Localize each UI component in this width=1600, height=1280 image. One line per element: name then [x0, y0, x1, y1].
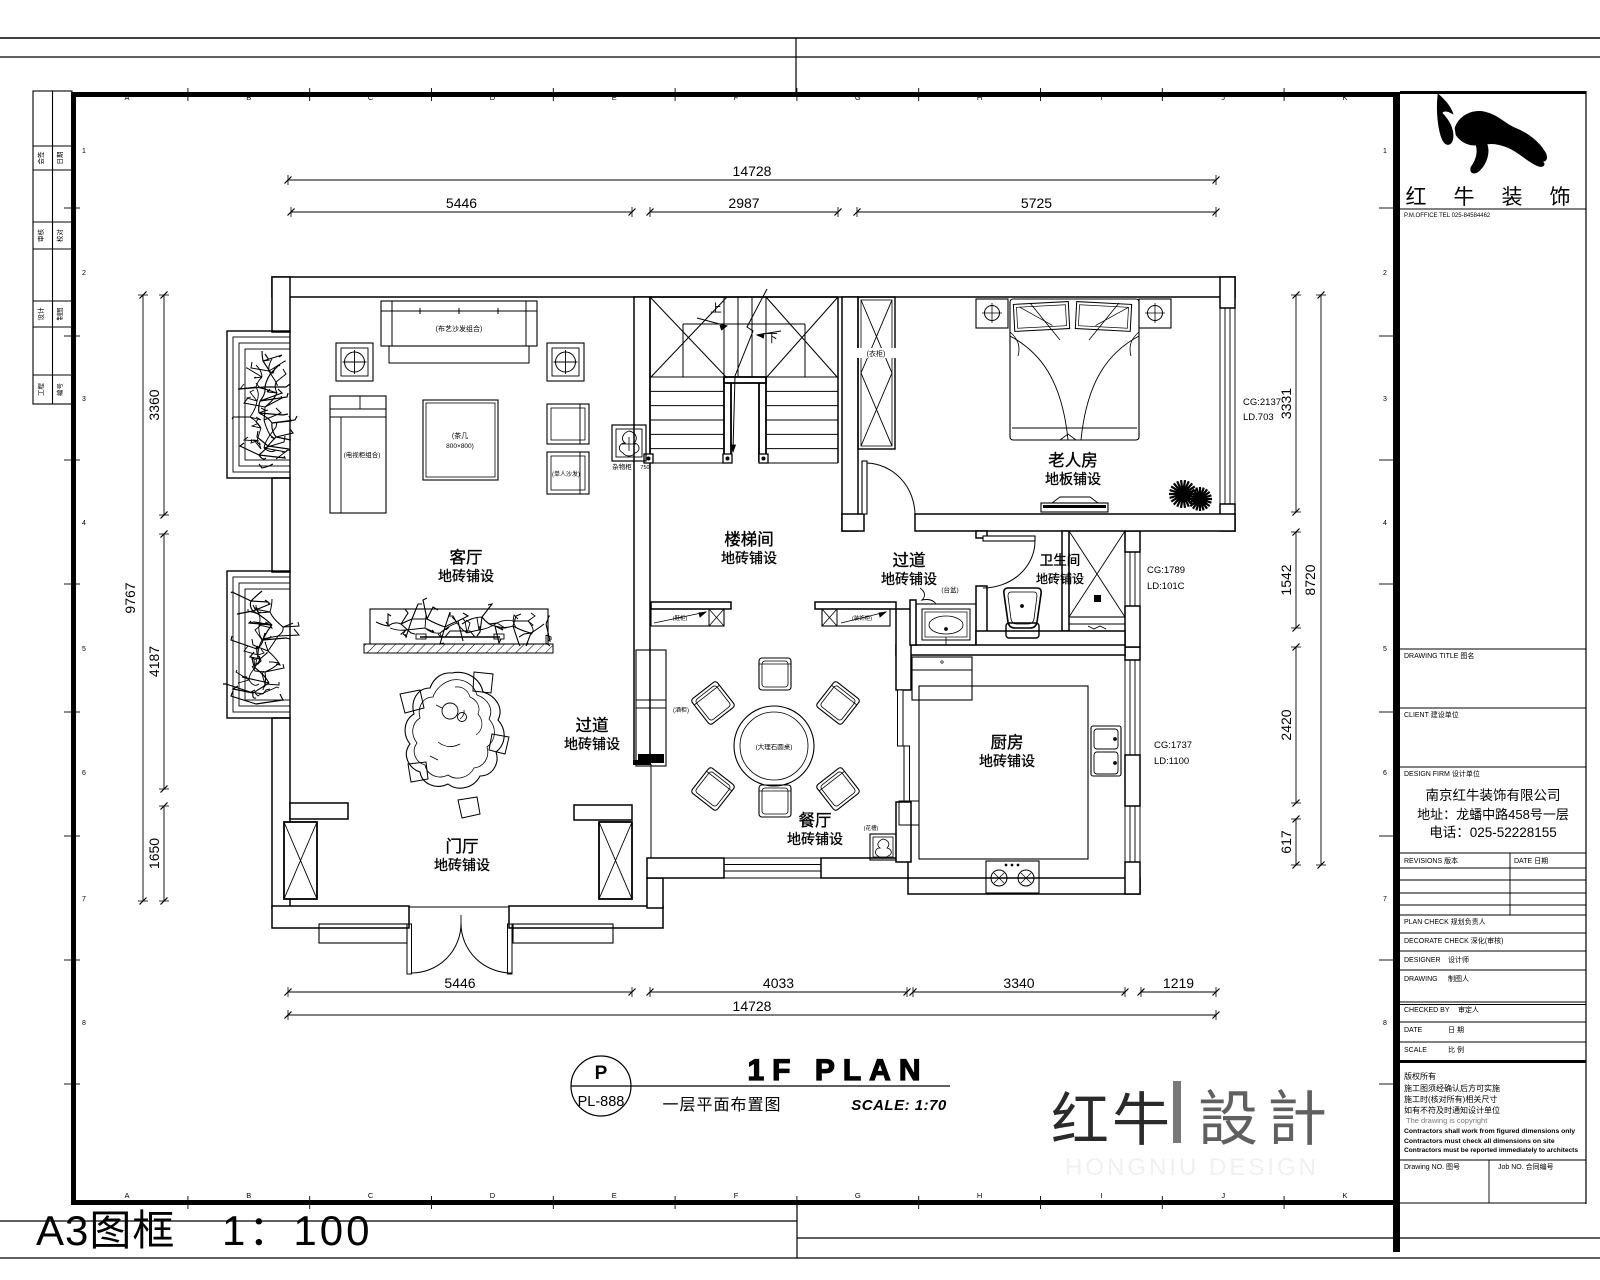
svg-text:1：100: 1：100: [222, 1207, 372, 1254]
svg-text:LD:101C: LD:101C: [1147, 581, 1185, 592]
svg-text:(单人沙发): (单人沙发): [552, 470, 580, 478]
svg-text:地砖铺设: 地砖铺设: [434, 857, 490, 873]
svg-text:800×800): 800×800): [446, 443, 474, 450]
svg-text:校对: 校对: [55, 229, 64, 243]
svg-text:地址：龙蟠中路458号一层: 地址：龙蟠中路458号一层: [1417, 807, 1569, 822]
svg-text:CHECKED BY: CHECKED BY: [1404, 1007, 1450, 1014]
svg-text:2420: 2420: [1278, 709, 1294, 740]
svg-text:制图人: 制图人: [1448, 974, 1469, 983]
svg-text:比 例: 比 例: [1448, 1045, 1464, 1054]
svg-text:杂物柜: 杂物柜: [612, 462, 632, 471]
svg-text:(布艺沙发组合): (布艺沙发组合): [436, 324, 483, 333]
svg-text:J: J: [1221, 93, 1225, 102]
svg-text:J: J: [1221, 1191, 1225, 1200]
svg-text:D: D: [490, 93, 496, 102]
svg-text:CG:2137: CG:2137: [1243, 397, 1281, 408]
svg-text:C: C: [368, 1191, 374, 1200]
svg-text:过道: 过道: [893, 551, 926, 570]
svg-text:G: G: [855, 93, 861, 102]
svg-text:617: 617: [1278, 830, 1294, 854]
svg-text:(电视柜组合): (电视柜组合): [344, 450, 381, 459]
svg-text:1542: 1542: [1278, 564, 1294, 595]
svg-text:E: E: [612, 93, 617, 102]
svg-text:3360: 3360: [146, 389, 162, 420]
svg-text:南京红牛装饰有限公司: 南京红牛装饰有限公司: [1426, 788, 1561, 803]
svg-text:装: 装: [1502, 186, 1523, 209]
svg-text:HONGNIU DESIGN: HONGNIU DESIGN: [1065, 1154, 1319, 1181]
svg-text:4: 4: [82, 520, 86, 527]
svg-text:PL-888: PL-888: [578, 1094, 625, 1110]
svg-text:CG:1737: CG:1737: [1154, 740, 1192, 751]
svg-text:8: 8: [1383, 1020, 1387, 1027]
svg-text:K: K: [1342, 93, 1347, 102]
svg-text:5725: 5725: [1021, 195, 1052, 211]
svg-text:地砖铺设: 地砖铺设: [721, 550, 777, 566]
svg-text:下: 下: [766, 333, 778, 345]
svg-text:(装饰柜): (装饰柜): [852, 614, 872, 622]
svg-text:编号: 编号: [55, 383, 64, 397]
svg-text:6: 6: [82, 770, 86, 777]
svg-text:门厅: 门厅: [446, 837, 479, 856]
svg-text:B: B: [246, 93, 251, 102]
svg-text:Job NO. 合同编号: Job NO. 合同编号: [1498, 1162, 1554, 1171]
svg-text:5: 5: [82, 646, 86, 653]
svg-text:H: H: [977, 1191, 982, 1200]
svg-text:5: 5: [1383, 646, 1387, 653]
svg-text:红: 红: [1406, 186, 1427, 209]
svg-text:设计: 设计: [36, 307, 45, 321]
svg-text:I: I: [1100, 1191, 1102, 1200]
svg-text:A: A: [124, 1191, 129, 1200]
svg-text:Contractors must check all dim: Contractors must check all dimensions on…: [1404, 1138, 1555, 1145]
svg-text:The drawing is copyright: The drawing is copyright: [1406, 1116, 1488, 1125]
svg-text:DESIGNER: DESIGNER: [1404, 957, 1441, 964]
svg-text:(台盆): (台盆): [941, 585, 958, 594]
svg-text:地砖铺设: 地砖铺设: [979, 753, 1035, 769]
svg-text:5446: 5446: [446, 195, 477, 211]
svg-text:F: F: [734, 93, 739, 102]
svg-text:F: F: [734, 1191, 739, 1200]
svg-text:DATE: DATE: [1404, 1027, 1422, 1034]
svg-text:Contractors shall work from fi: Contractors shall work from figured dime…: [1404, 1128, 1575, 1135]
svg-text:(大理石圆桌): (大理石圆桌): [756, 742, 793, 751]
svg-text:4033: 4033: [763, 975, 794, 991]
svg-text:电话：025-52228155: 电话：025-52228155: [1429, 825, 1557, 840]
svg-text:(衣柜): (衣柜): [867, 349, 886, 358]
svg-text:厨房: 厨房: [991, 733, 1024, 752]
svg-text:H: H: [977, 93, 982, 102]
svg-text:5446: 5446: [444, 975, 475, 991]
svg-text:日 期: 日 期: [1448, 1026, 1464, 1034]
svg-text:I: I: [1100, 93, 1102, 102]
svg-text:审定人: 审定人: [1458, 1005, 1479, 1014]
svg-text:地砖铺设: 地砖铺设: [787, 831, 843, 847]
svg-text:地砖铺设: 地砖铺设: [881, 571, 937, 587]
svg-text:客厅: 客厅: [450, 548, 483, 567]
svg-text:牛: 牛: [1454, 186, 1475, 209]
svg-text:(酒柜): (酒柜): [673, 706, 689, 714]
svg-text:A: A: [124, 93, 129, 102]
svg-text:DRAWING: DRAWING: [1404, 976, 1438, 983]
svg-text:2987: 2987: [728, 195, 759, 211]
svg-text:4: 4: [1383, 520, 1387, 527]
svg-text:版权所有: 版权所有: [1404, 1071, 1436, 1081]
svg-text:D: D: [490, 1191, 496, 1200]
svg-text:DRAWING TITLE 图名: DRAWING TITLE 图名: [1404, 651, 1474, 660]
svg-text:过道: 过道: [576, 716, 609, 735]
svg-text:SCALE: SCALE: [1404, 1047, 1427, 1054]
svg-text:14728: 14728: [733, 998, 772, 1014]
svg-text:P.M.OFFICE TEL 025-84584462: P.M.OFFICE TEL 025-84584462: [1404, 213, 1491, 219]
svg-text:2: 2: [82, 270, 86, 277]
svg-text:750: 750: [640, 465, 649, 471]
svg-text:LD:1100: LD:1100: [1154, 756, 1189, 767]
svg-text:餐厅: 餐厅: [799, 811, 832, 830]
svg-text:SCALE: 1:70: SCALE: 1:70: [851, 1097, 947, 1114]
svg-text:B: B: [246, 1191, 251, 1200]
svg-text:地板铺设: 地板铺设: [1045, 471, 1101, 487]
svg-text:老人房: 老人房: [1048, 451, 1098, 470]
svg-text:设计师: 设计师: [1448, 955, 1469, 964]
svg-text:一层平面布置图: 一层平面布置图: [662, 1096, 781, 1114]
svg-text:1: 1: [82, 148, 86, 155]
svg-text:E: E: [612, 1191, 617, 1200]
svg-text:(茶几: (茶几: [452, 431, 468, 440]
svg-text:P: P: [595, 1063, 608, 1084]
svg-text:日期: 日期: [56, 151, 64, 165]
svg-text:8720: 8720: [1302, 564, 1318, 595]
svg-text:3: 3: [82, 396, 86, 403]
svg-text:LD.703: LD.703: [1243, 412, 1274, 423]
svg-text:红牛: 红牛: [1051, 1088, 1173, 1153]
svg-text:8: 8: [82, 1020, 86, 1027]
svg-text:G: G: [855, 1191, 861, 1200]
svg-text:DECORATE CHECK 深化(审核): DECORATE CHECK 深化(审核): [1404, 936, 1503, 945]
svg-text:A3图框: A3图框: [36, 1207, 175, 1254]
svg-text:設計: 設計: [1198, 1086, 1336, 1153]
svg-text:4187: 4187: [146, 646, 162, 677]
svg-text:2: 2: [1383, 270, 1387, 277]
svg-text:CLIENT 建设单位: CLIENT 建设单位: [1404, 710, 1459, 719]
svg-text:7: 7: [1383, 896, 1387, 903]
svg-text:1F PLAN: 1F PLAN: [747, 1054, 928, 1087]
svg-text:1650: 1650: [146, 838, 162, 869]
svg-text:14728: 14728: [733, 163, 772, 179]
svg-text:地砖铺设: 地砖铺设: [438, 568, 494, 584]
svg-text:CG:1789: CG:1789: [1147, 565, 1185, 576]
svg-text:卫生间: 卫生间: [1040, 553, 1081, 568]
svg-text:DATE 日期: DATE 日期: [1514, 857, 1548, 865]
svg-text:3340: 3340: [1003, 975, 1034, 991]
svg-text:如有不符及时通知设计单位: 如有不符及时通知设计单位: [1404, 1105, 1500, 1115]
svg-text:地砖铺设: 地砖铺设: [564, 736, 620, 752]
svg-text:PLAN CHECK 规划负责人: PLAN CHECK 规划负责人: [1404, 917, 1486, 926]
svg-text:DESIGN FIRM 设计单位: DESIGN FIRM 设计单位: [1404, 769, 1480, 778]
svg-text:地砖铺设: 地砖铺设: [1036, 571, 1084, 586]
svg-text:1: 1: [1383, 148, 1387, 155]
svg-text:制图: 制图: [55, 308, 64, 321]
svg-text:K: K: [1342, 1191, 1347, 1200]
svg-text:Drawing NO. 图号: Drawing NO. 图号: [1404, 1163, 1460, 1171]
svg-text:施工时(核对所有)相关尺寸: 施工时(核对所有)相关尺寸: [1404, 1094, 1497, 1104]
svg-text:饰: 饰: [1550, 186, 1571, 209]
svg-text:Contractors must be reported i: Contractors must be reported immediately…: [1404, 1147, 1578, 1154]
svg-text:9767: 9767: [122, 582, 138, 613]
svg-text:3: 3: [1383, 396, 1387, 403]
svg-text:会签: 会签: [36, 151, 45, 165]
svg-text:楼梯间: 楼梯间: [724, 530, 774, 549]
svg-text:REVISIONS 版本: REVISIONS 版本: [1404, 856, 1458, 865]
svg-text:7: 7: [82, 896, 86, 903]
svg-text:施工图须经确认后方可实施: 施工图须经确认后方可实施: [1404, 1083, 1500, 1093]
svg-text:工程: 工程: [36, 383, 45, 397]
svg-text:上: 上: [710, 302, 722, 315]
svg-text:C: C: [368, 93, 374, 102]
svg-text:(花槽): (花槽): [864, 824, 879, 832]
svg-text:(鞋柜): (鞋柜): [673, 614, 688, 622]
svg-text:审核: 审核: [36, 229, 45, 243]
svg-text:6: 6: [1383, 770, 1387, 777]
svg-text:1219: 1219: [1163, 975, 1194, 991]
